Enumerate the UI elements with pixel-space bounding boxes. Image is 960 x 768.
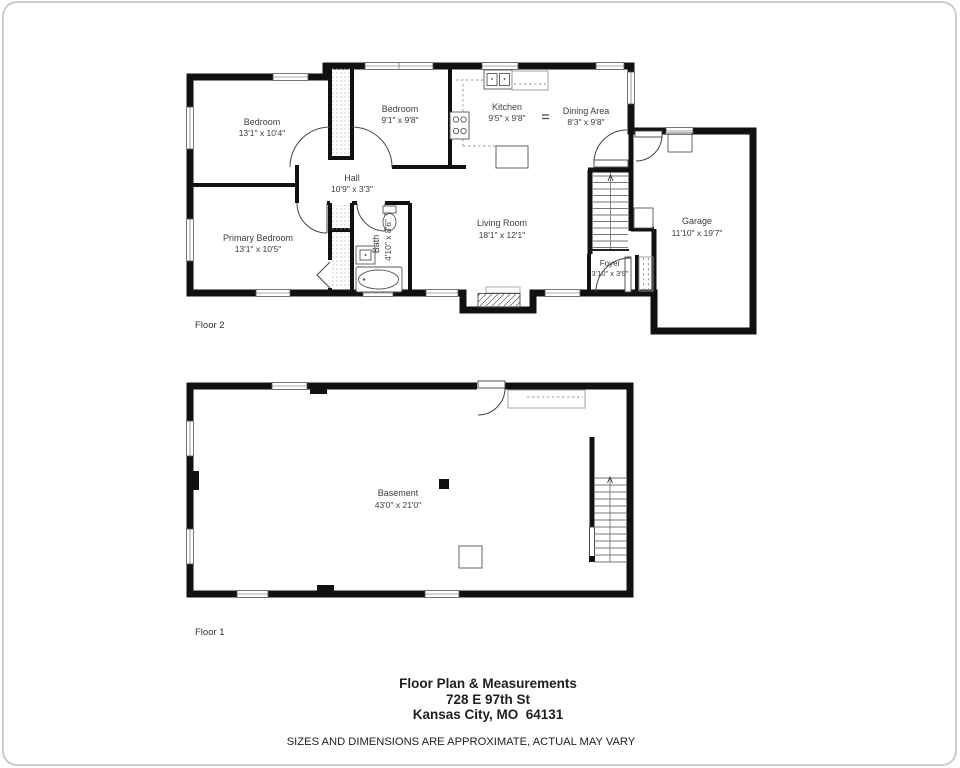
- room-label: Bedroom: [244, 117, 281, 127]
- footer-disclaimer: SIZES AND DIMENSIONS ARE APPROXIMATE, AC…: [287, 736, 636, 748]
- garage-step: [634, 208, 653, 228]
- door-leaf: [594, 160, 628, 167]
- kitchen-sink-icon: [484, 70, 512, 89]
- floor1-label: Floor 1: [195, 627, 225, 638]
- door-arc: [352, 127, 392, 167]
- window: [482, 63, 518, 70]
- room-dims: 9'1" x 9'8": [381, 115, 418, 125]
- window: [596, 63, 624, 70]
- room-label: Hall: [344, 173, 360, 183]
- room-dims: 43'0" x 21'0": [375, 500, 422, 510]
- floor2-label: Floor 2: [195, 320, 225, 331]
- window: [545, 290, 580, 297]
- room-label: Bedroom: [382, 104, 419, 114]
- room-dims: 13'1" x 10'5": [235, 244, 282, 254]
- room-dims: 18'1" x 12'1": [479, 230, 526, 240]
- window: [237, 591, 268, 598]
- door-arc: [594, 130, 627, 163]
- door-leaf: [478, 381, 505, 388]
- closet-bifold-door: [317, 262, 330, 288]
- window: [187, 529, 194, 564]
- floor2-interior-walls: [190, 66, 654, 293]
- room-label: Primary Bedroom: [223, 233, 293, 243]
- door-arc: [357, 203, 385, 231]
- window: [273, 74, 308, 81]
- window: [187, 219, 194, 261]
- floor2-plan: Bedroom 13'1" x 10'4" Bedroom 9'1" x 9'8…: [187, 63, 754, 332]
- room-dims: 4'10" x 8'6": [383, 219, 393, 261]
- footer: Floor Plan & Measurements 728 E 97th St …: [287, 676, 636, 748]
- door-arc: [290, 127, 330, 167]
- room-dims: 8'3" x 9'8": [567, 117, 604, 127]
- basement-door: [478, 381, 505, 415]
- door-arc: [636, 135, 662, 161]
- stairs-floor2: [591, 172, 629, 250]
- wall-pier: [190, 471, 199, 490]
- room-dims: 10'9" x 3'3": [331, 184, 373, 194]
- footer-address-line2: Kansas City, MO 64131: [413, 707, 564, 722]
- stairs-basement: [589, 437, 627, 562]
- garage-cabinet-icon: [668, 133, 692, 152]
- kitchen-peninsula: [496, 146, 528, 168]
- basement-cabinet: [508, 390, 585, 408]
- hearth: [486, 287, 520, 293]
- room-dims: 3'10" x 3'9": [592, 269, 629, 278]
- window: [628, 72, 635, 104]
- room-label: Living Room: [477, 218, 527, 228]
- room-label: Basement: [378, 488, 419, 498]
- door-leaf: [635, 131, 662, 137]
- floor1-plan: Basement 43'0" x 21'0" Floor 1: [187, 381, 631, 638]
- fireplace: [478, 287, 520, 308]
- vent-icon: [542, 115, 549, 119]
- room-label: Bath: [371, 235, 381, 254]
- bathtub-icon: [356, 267, 402, 292]
- closet-chase-upper: [332, 68, 350, 156]
- window: [187, 107, 194, 149]
- door-arc: [478, 388, 505, 415]
- footer-title: Floor Plan & Measurements: [399, 676, 577, 691]
- window: [256, 290, 290, 297]
- door-arc: [297, 203, 327, 233]
- garage-fixtures: [634, 133, 692, 291]
- chimney-bump: [310, 384, 327, 394]
- window: [425, 591, 459, 598]
- chimney-bump: [317, 585, 334, 594]
- window: [365, 63, 433, 70]
- closet-chase-lower: [332, 205, 350, 288]
- room-label: Foyer: [600, 259, 621, 268]
- room-dims: 11'10" x 19'7": [672, 228, 723, 238]
- room-label: Dining Area: [563, 106, 610, 116]
- counter: [512, 71, 548, 90]
- room-label: Garage: [682, 216, 712, 226]
- fireplace-hatch: [478, 294, 520, 308]
- utility-pad: [459, 546, 482, 568]
- support-post-icon: [439, 479, 449, 489]
- room-dims: 13'1" x 10'4": [239, 128, 286, 138]
- floor-plan-image: Bedroom 13'1" x 10'4" Bedroom 9'1" x 9'8…: [0, 0, 960, 768]
- footer-address-line1: 728 E 97th St: [446, 692, 531, 707]
- room-dims: 9'5" x 9'8": [488, 113, 525, 123]
- stove-icon: [450, 112, 469, 139]
- stair-rail: [590, 527, 595, 558]
- room-label: Kitchen: [492, 102, 522, 112]
- window: [187, 421, 194, 456]
- window: [272, 383, 307, 390]
- window: [426, 290, 458, 297]
- foyer-closet: [639, 257, 653, 291]
